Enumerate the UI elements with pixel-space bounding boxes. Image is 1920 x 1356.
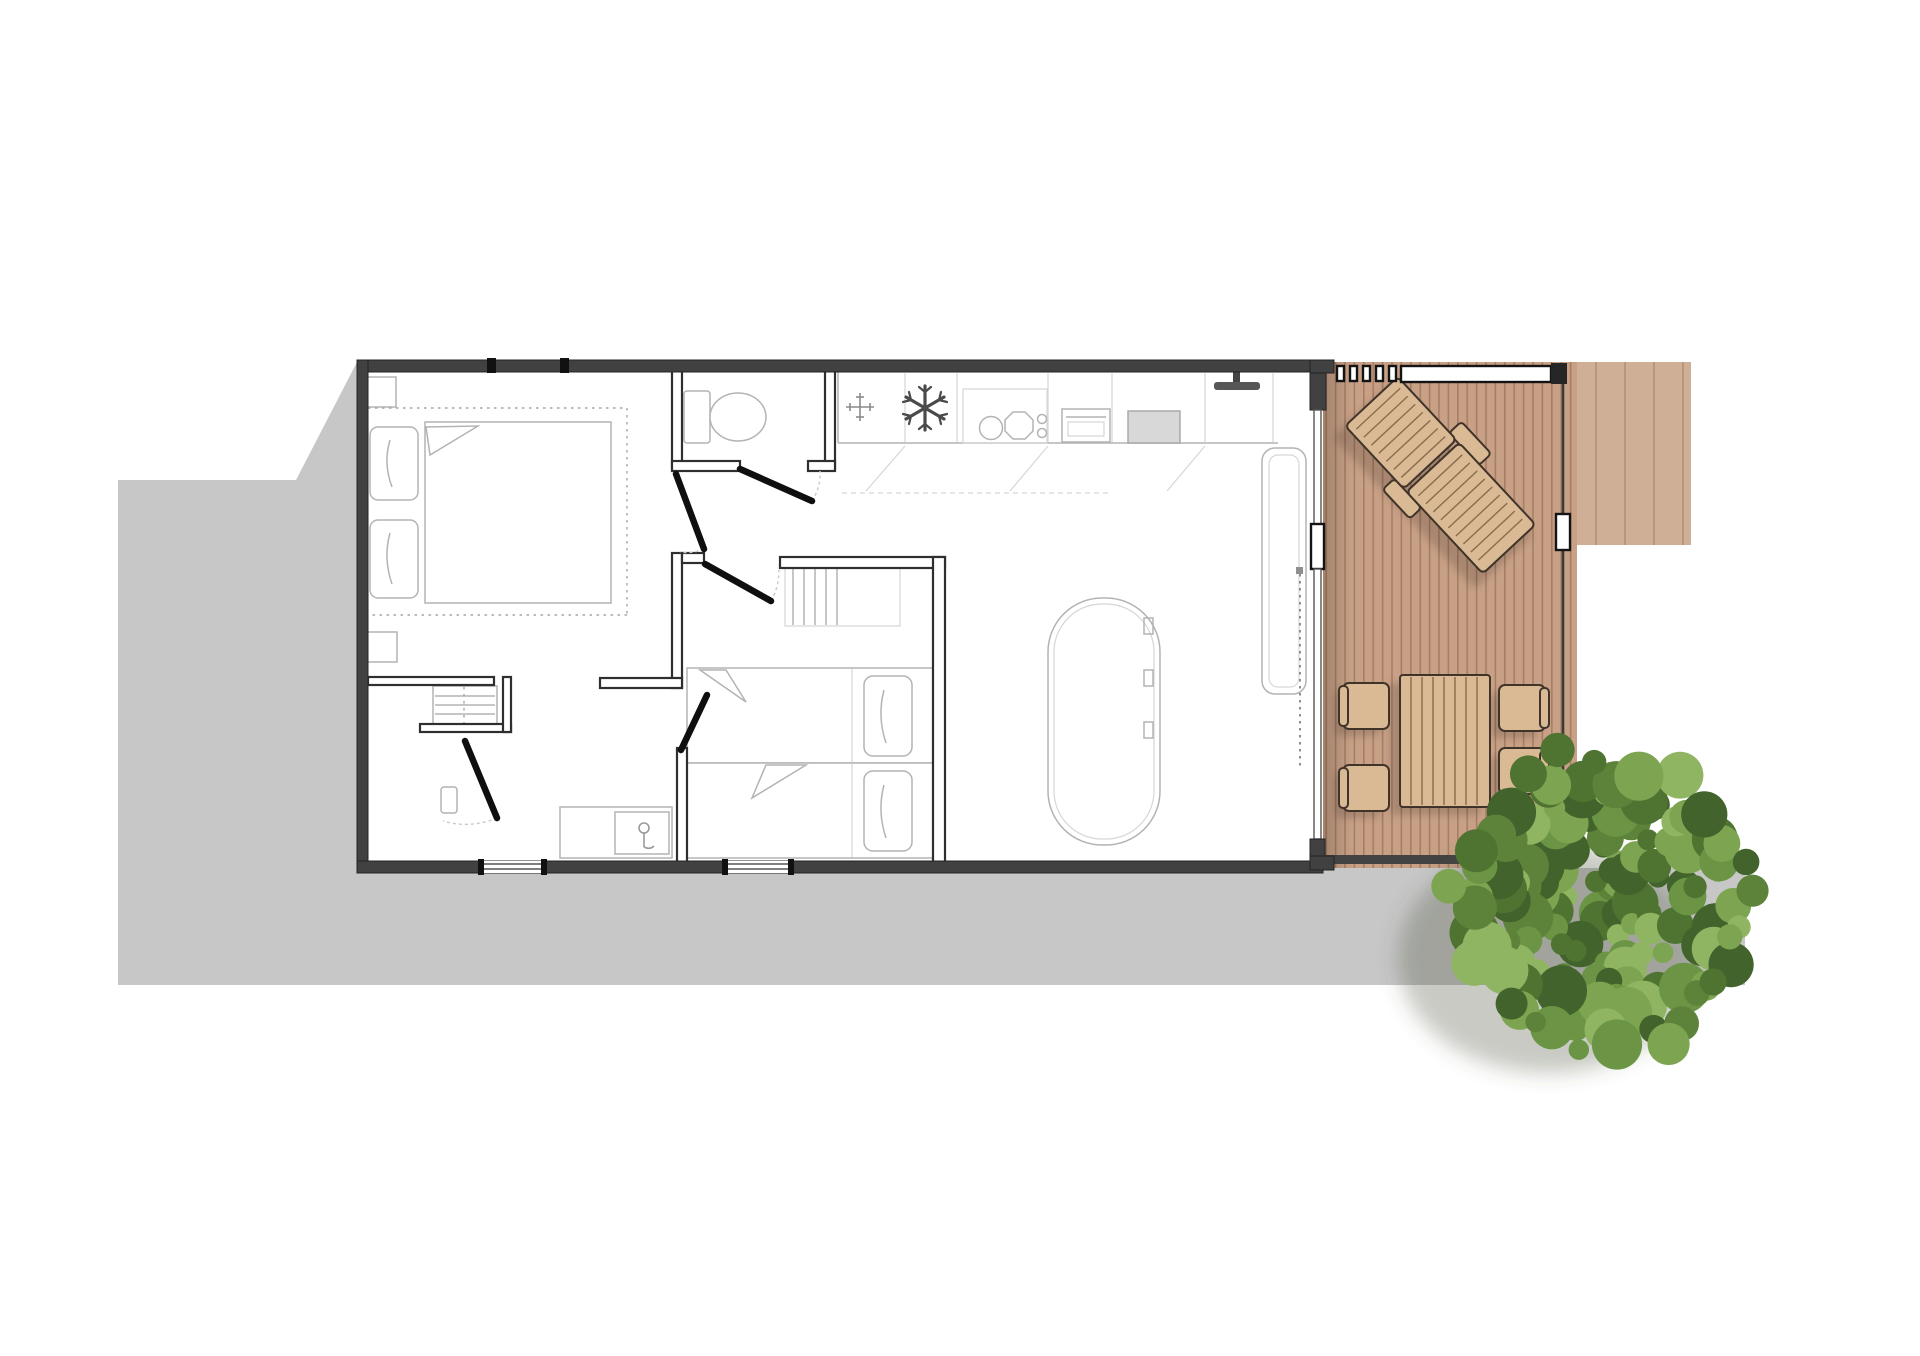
window-south [478,859,547,875]
wall-north [357,360,1323,372]
railing-top-rail [1401,366,1551,382]
window-south [722,859,794,875]
oven [1062,409,1110,442]
railing-post [1376,366,1383,381]
wc-room [684,391,766,443]
washbasin [441,787,457,813]
nightstand [366,377,396,407]
railing-post [1363,366,1370,381]
double-bed [425,422,611,603]
window-mullion [487,358,496,373]
pillow [370,427,418,500]
toilet-bowl [710,393,766,441]
toilet-cistern [684,391,710,443]
railing-post [1389,366,1396,381]
railing-post [1556,514,1570,550]
outdoor-chair [1499,685,1549,731]
pillow [864,676,912,756]
shower-unit [560,807,672,858]
glazing-bay [1314,410,1321,524]
faucet-knob [1038,429,1047,438]
glazing-bay [1314,569,1321,839]
nightstand [367,632,397,662]
wardrobe-shelves [433,686,497,724]
railing-post [1350,366,1357,381]
outdoor-chair [1339,683,1389,729]
outdoor-chair [1339,765,1389,811]
sink-bowl-octagon [1005,412,1033,439]
railing-post [1337,366,1344,381]
sink-bowl [980,417,1003,440]
dining-table [1048,598,1160,845]
floor-plan-svg [0,0,1920,1356]
pillow [864,771,912,851]
railing-corner [1551,363,1567,384]
door-jamb [1311,524,1324,569]
sliding-door-stop [1296,567,1303,574]
wall-west [357,360,368,873]
side-terrace-planks [1569,362,1691,545]
faucet-knob [1038,415,1047,424]
floor-plan-canvas [0,0,1920,1356]
window-mullion [560,358,569,373]
pillow [370,520,418,598]
microwave [1128,411,1180,443]
